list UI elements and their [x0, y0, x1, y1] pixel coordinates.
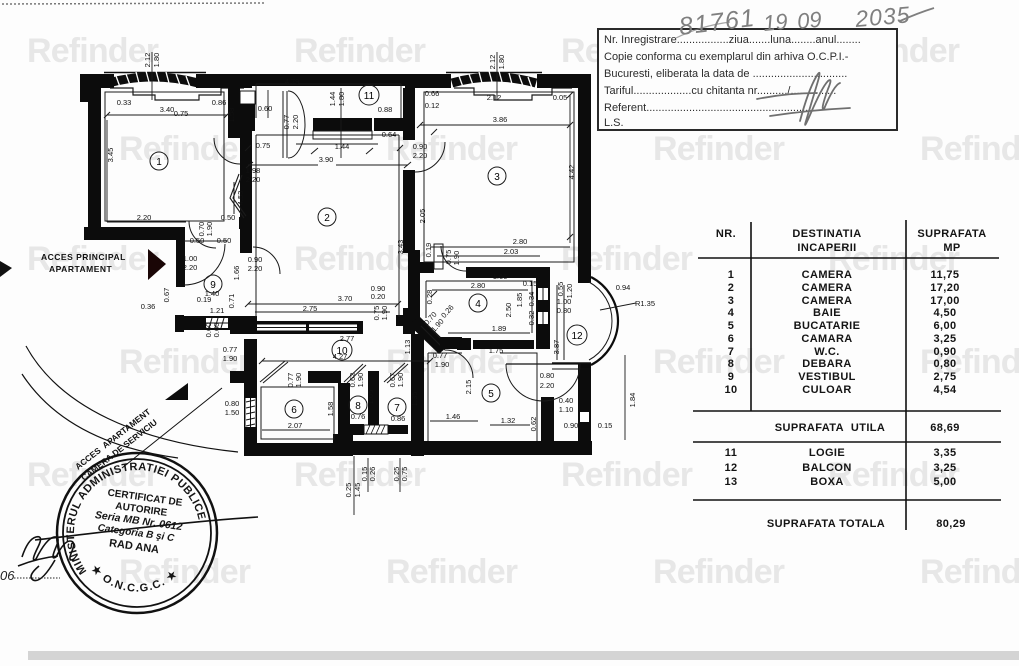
svg-text:1.90: 1.90	[435, 360, 450, 369]
svg-text:4: 4	[475, 299, 481, 310]
svg-text:1.90: 1.90	[396, 373, 405, 388]
svg-text:0.77: 0.77	[282, 115, 291, 130]
svg-text:1.80: 1.80	[152, 53, 161, 68]
svg-text:3.40: 3.40	[160, 105, 175, 114]
svg-text:2.12: 2.12	[143, 53, 152, 68]
svg-text:Tariful...................cu c: Tariful...................cu chitanta nr…	[604, 85, 836, 97]
svg-text:BAIE: BAIE	[813, 307, 841, 319]
svg-text:4.27: 4.27	[333, 352, 348, 361]
svg-text:R1.35: R1.35	[635, 299, 655, 308]
svg-text:0.75: 0.75	[400, 467, 409, 482]
svg-text:0.15: 0.15	[598, 421, 613, 430]
svg-text:CAMERA: CAMERA	[802, 269, 853, 281]
svg-text:17,00: 17,00	[930, 295, 960, 307]
svg-text:DESTINATIA: DESTINATIA	[792, 228, 861, 240]
svg-text:1.32: 1.32	[501, 416, 516, 425]
svg-text:1.58: 1.58	[227, 108, 236, 123]
svg-text:8: 8	[728, 358, 735, 370]
svg-text:1: 1	[728, 269, 735, 281]
svg-text:Refinder: Refinder	[294, 32, 426, 70]
svg-text:2.20: 2.20	[183, 263, 198, 272]
svg-text:5,00: 5,00	[933, 476, 956, 488]
svg-text:0.62: 0.62	[529, 417, 538, 432]
svg-text:2.12: 2.12	[488, 55, 497, 70]
svg-text:1.46: 1.46	[446, 412, 461, 421]
svg-text:1.90: 1.90	[356, 373, 365, 388]
svg-text:8: 8	[355, 401, 361, 412]
svg-text:1.50: 1.50	[225, 408, 240, 417]
svg-text:INCAPERII: INCAPERII	[797, 242, 856, 254]
svg-text:2.77: 2.77	[340, 334, 355, 343]
svg-text:0.80: 0.80	[225, 399, 240, 408]
svg-text:9: 9	[728, 371, 735, 383]
svg-text:Refinder: Refinder	[561, 456, 693, 494]
svg-text:4,50: 4,50	[933, 307, 956, 319]
svg-text:7: 7	[728, 346, 735, 358]
svg-text:0.71: 0.71	[227, 294, 236, 309]
svg-text:0.75: 0.75	[256, 141, 271, 150]
svg-text:1.05: 1.05	[366, 390, 375, 405]
svg-text:4: 4	[728, 307, 735, 319]
svg-text:0.90: 0.90	[564, 421, 579, 430]
svg-text:0.76: 0.76	[351, 412, 366, 421]
svg-text:0.34: 0.34	[527, 292, 536, 307]
svg-text:L.S.: L.S.	[604, 117, 624, 129]
svg-text:12: 12	[571, 331, 583, 342]
svg-text:3,25: 3,25	[933, 462, 956, 474]
svg-text:0.19: 0.19	[197, 295, 212, 304]
svg-text:2.20: 2.20	[540, 381, 555, 390]
svg-text:2,75: 2,75	[933, 371, 956, 383]
svg-text:4.53: 4.53	[236, 191, 245, 206]
svg-text:3.86: 3.86	[493, 115, 508, 124]
svg-text:0.05: 0.05	[553, 93, 568, 102]
svg-text:2.80: 2.80	[471, 281, 486, 290]
svg-text:LOGIE: LOGIE	[809, 447, 845, 459]
svg-text:19: 19	[762, 9, 789, 36]
svg-text:1.90: 1.90	[452, 251, 461, 266]
svg-text:1.98: 1.98	[246, 166, 261, 175]
svg-text:2.80: 2.80	[513, 237, 528, 246]
svg-text:6: 6	[291, 405, 297, 416]
svg-text:11: 11	[725, 447, 737, 459]
svg-text:12: 12	[724, 462, 737, 474]
svg-text:ACCES PRINCIPAL: ACCES PRINCIPAL	[41, 252, 126, 262]
svg-text:1.58: 1.58	[326, 402, 335, 417]
svg-text:0.86: 0.86	[212, 98, 227, 107]
svg-text:1.35: 1.35	[410, 392, 419, 407]
svg-text:1.90: 1.90	[294, 373, 303, 388]
svg-text:0.90: 0.90	[248, 255, 263, 264]
svg-text:2.20: 2.20	[137, 213, 152, 222]
svg-text:5: 5	[488, 389, 494, 400]
svg-text:2.75: 2.75	[303, 304, 318, 313]
svg-text:4.79: 4.79	[285, 77, 300, 86]
svg-text:0.15: 0.15	[523, 279, 538, 288]
svg-text:Refinder: Refinder	[653, 343, 785, 381]
svg-text:4,54: 4,54	[933, 384, 956, 396]
svg-text:0.88: 0.88	[378, 105, 393, 114]
svg-text:2.20: 2.20	[246, 175, 261, 184]
svg-text:DEBARA: DEBARA	[802, 358, 851, 370]
svg-text:11,75: 11,75	[931, 269, 960, 281]
svg-text:80,29: 80,29	[936, 518, 966, 530]
svg-text:2.20: 2.20	[248, 264, 263, 273]
svg-text:3,25: 3,25	[933, 333, 956, 345]
svg-text:Referent......................: Referent................................…	[604, 102, 814, 114]
svg-text:1.20: 1.20	[565, 284, 574, 299]
svg-text:3: 3	[728, 295, 735, 307]
svg-text:BOXA: BOXA	[810, 476, 843, 488]
svg-text:1: 1	[156, 157, 162, 168]
svg-text:VESTIBUL: VESTIBUL	[798, 371, 856, 383]
svg-text:2.07: 2.07	[288, 421, 303, 430]
svg-text:CULOAR: CULOAR	[802, 384, 851, 396]
svg-text:Refinder: Refinder	[27, 32, 159, 70]
svg-text:3.70: 3.70	[338, 294, 353, 303]
svg-text:0.67: 0.67	[162, 288, 171, 303]
svg-text:1.80: 1.80	[497, 55, 506, 70]
svg-text:0.80: 0.80	[557, 306, 572, 315]
svg-text:0.50: 0.50	[217, 236, 232, 245]
svg-text:2.12: 2.12	[487, 93, 502, 102]
svg-text:3.43: 3.43	[396, 240, 405, 255]
svg-text:1.90: 1.90	[223, 354, 238, 363]
svg-text:3.45: 3.45	[106, 148, 115, 163]
svg-text:0,90: 0,90	[933, 346, 956, 358]
svg-text:0.33: 0.33	[117, 98, 132, 107]
svg-text:1.90: 1.90	[205, 222, 214, 237]
svg-text:0.36: 0.36	[141, 302, 156, 311]
svg-text:06: 06	[0, 568, 15, 583]
svg-text:0.77: 0.77	[223, 345, 238, 354]
svg-text:Refinder: Refinder	[920, 130, 1019, 168]
svg-text:2035: 2035	[853, 1, 911, 32]
svg-text:3.87: 3.87	[552, 340, 561, 355]
svg-text:0.90: 0.90	[413, 142, 428, 151]
svg-text:2.20: 2.20	[291, 115, 300, 130]
svg-text:Refinder: Refinder	[653, 130, 785, 168]
svg-text:Bucuresti, eliberata la data d: Bucuresti, eliberata la data de ........…	[604, 68, 847, 80]
svg-text:10: 10	[724, 384, 737, 396]
svg-text:3: 3	[494, 172, 500, 183]
svg-text:13: 13	[724, 476, 737, 488]
svg-text:1.10: 1.10	[559, 405, 574, 414]
svg-text:1.75: 1.75	[489, 346, 504, 355]
svg-text:Nr. Inregistrare..............: Nr. Inregistrare.................ziua...…	[604, 34, 861, 46]
svg-text:1.84: 1.84	[628, 393, 637, 408]
svg-text:CAMERA: CAMERA	[802, 282, 853, 294]
svg-text:17,20: 17,20	[930, 282, 960, 294]
svg-text:MP: MP	[943, 242, 960, 254]
svg-text:0.28: 0.28	[425, 290, 434, 305]
svg-text:2: 2	[728, 282, 735, 294]
svg-text:0.80: 0.80	[540, 371, 555, 380]
svg-text:1.45: 1.45	[353, 483, 362, 498]
svg-text:0.25: 0.25	[344, 483, 353, 498]
svg-text:6,00: 6,00	[933, 320, 956, 332]
svg-text:W.C.: W.C.	[814, 346, 839, 358]
svg-text:0.50: 0.50	[190, 236, 205, 245]
svg-text:0.66: 0.66	[425, 89, 440, 98]
svg-text:2.50: 2.50	[504, 303, 513, 318]
svg-text:0.12: 0.12	[425, 101, 440, 110]
svg-text:68,69: 68,69	[930, 422, 960, 434]
svg-text:0.32: 0.32	[527, 311, 536, 326]
svg-text:1.44: 1.44	[335, 142, 350, 151]
svg-text:0.77: 0.77	[433, 351, 448, 360]
svg-text:09: 09	[796, 7, 823, 34]
svg-text:0.26: 0.26	[439, 303, 455, 320]
svg-text:2.05: 2.05	[418, 209, 427, 224]
svg-text:0,80: 0,80	[933, 358, 956, 370]
svg-text:Refinder: Refinder	[653, 553, 785, 591]
svg-text:1.89: 1.89	[492, 324, 507, 333]
svg-text:5: 5	[728, 320, 735, 332]
svg-text:1.66: 1.66	[232, 266, 241, 281]
svg-text:1.85: 1.85	[515, 293, 524, 308]
svg-text:SUPRAFATA UTILA: SUPRAFATA UTILA	[775, 422, 886, 434]
svg-text:1.90: 1.90	[380, 306, 389, 321]
svg-text:0.20: 0.20	[371, 292, 386, 301]
svg-text:1.13: 1.13	[403, 340, 412, 355]
svg-text:0.55: 0.55	[556, 282, 565, 297]
svg-text:1.44: 1.44	[328, 92, 337, 107]
svg-text:2.15: 2.15	[464, 380, 473, 395]
svg-text:Refinder: Refinder	[920, 553, 1019, 591]
svg-text:SUPRAFATA: SUPRAFATA	[917, 228, 986, 240]
svg-text:2.20: 2.20	[413, 151, 428, 160]
svg-text:0.50: 0.50	[221, 213, 236, 222]
svg-text:0.75: 0.75	[174, 109, 189, 118]
svg-text:SUPRAFATA TOTALA: SUPRAFATA TOTALA	[767, 518, 885, 530]
svg-text:Copie conforma cu exemplarul d: Copie conforma cu exemplarul din arhiva …	[604, 51, 849, 63]
svg-text:0.19: 0.19	[424, 243, 433, 258]
svg-text:1.66: 1.66	[493, 272, 508, 281]
svg-text:1.00: 1.00	[183, 254, 198, 263]
svg-text:0.94: 0.94	[616, 283, 631, 292]
svg-text:APARTAMENT: APARTAMENT	[49, 264, 113, 274]
svg-text:NR.: NR.	[716, 228, 736, 240]
svg-text:Refinder: Refinder	[386, 553, 518, 591]
svg-text:3,35: 3,35	[933, 447, 956, 459]
svg-text:1.21: 1.21	[210, 306, 225, 315]
svg-text:2: 2	[324, 213, 330, 224]
svg-text:0.86: 0.86	[391, 414, 406, 423]
svg-text:3.90: 3.90	[319, 155, 334, 164]
svg-text:4.42: 4.42	[567, 165, 576, 180]
svg-text:0.64: 0.64	[382, 130, 397, 139]
svg-text:CAMARA: CAMARA	[801, 333, 852, 345]
svg-text:0.26: 0.26	[368, 467, 377, 482]
svg-text:1.80: 1.80	[337, 92, 346, 107]
svg-text:7: 7	[394, 403, 400, 414]
svg-text:BALCON: BALCON	[802, 462, 851, 474]
svg-text:BUCATARIE: BUCATARIE	[794, 320, 861, 332]
svg-text:2.03: 2.03	[504, 247, 519, 256]
svg-text:0.60: 0.60	[212, 323, 221, 338]
svg-text:6: 6	[728, 333, 735, 345]
svg-text:0.40: 0.40	[559, 396, 574, 405]
svg-text:0.60: 0.60	[258, 104, 273, 113]
svg-text:CAMERA: CAMERA	[802, 295, 853, 307]
